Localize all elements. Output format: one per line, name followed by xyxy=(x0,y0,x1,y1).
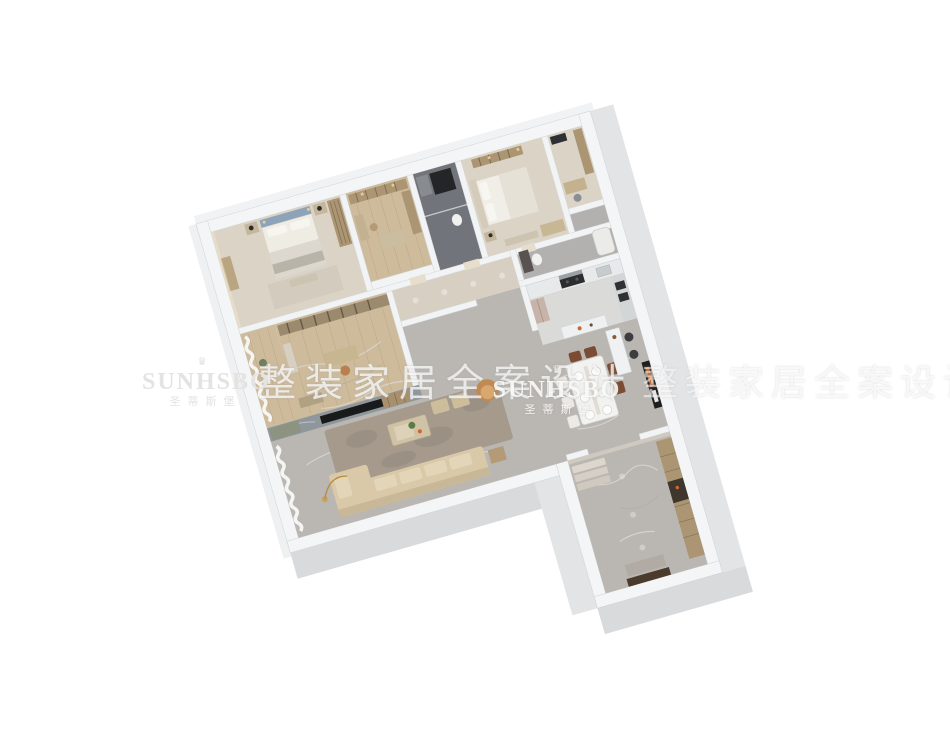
apartment xyxy=(186,97,753,714)
render-canvas: 整装家居全案设计 整装家居全案设计 ♛ SUNHSBO 圣蒂斯堡 ♛ SUNHS… xyxy=(0,0,950,733)
floorplan-3d-render xyxy=(0,0,950,733)
